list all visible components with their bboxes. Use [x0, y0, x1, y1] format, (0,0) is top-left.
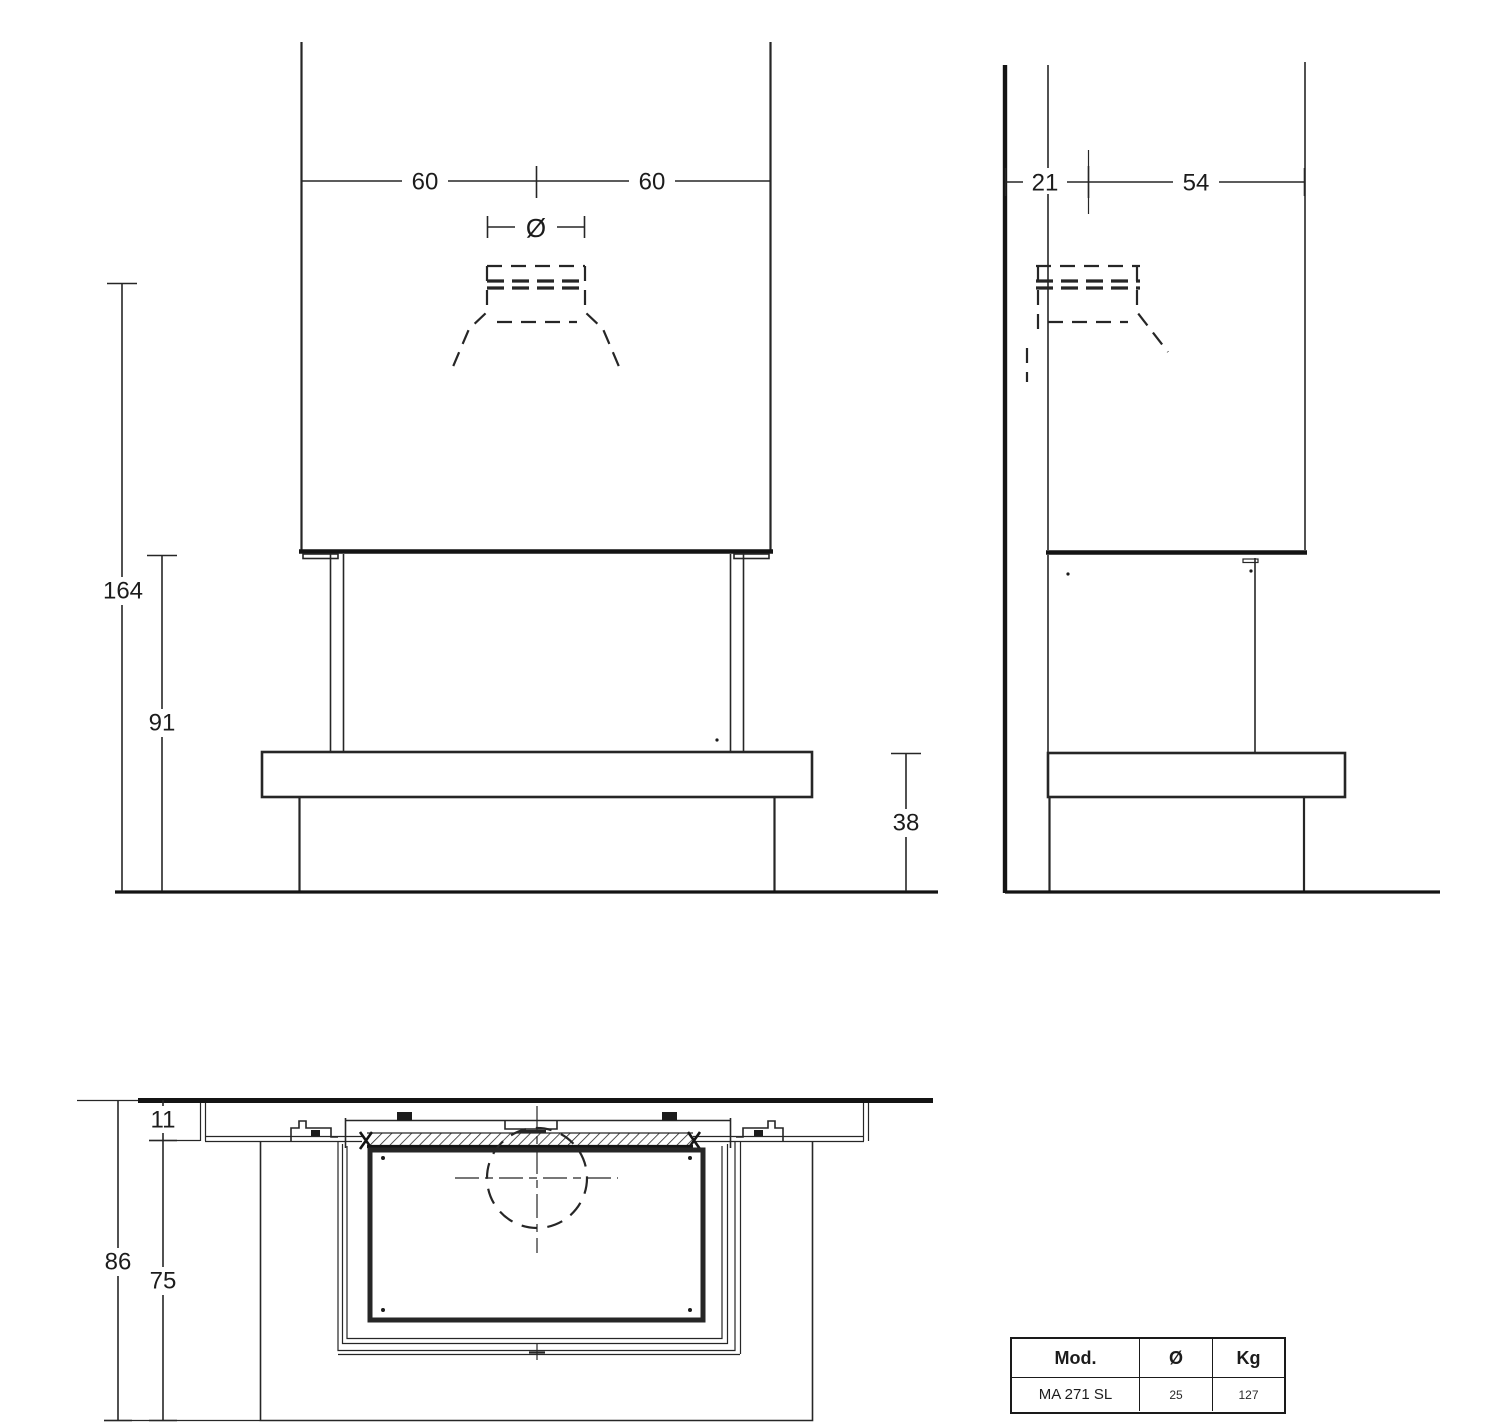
dim-label-flue-diameter: Ø: [526, 213, 546, 243]
plan-surround-outlines: [338, 1141, 741, 1360]
front-dim-total-height: 164: [96, 283, 150, 891]
front-dim-width: 60 60: [301, 166, 771, 198]
spec-value-weight: 127: [1213, 1378, 1284, 1411]
spec-header-weight: Kg: [1213, 1339, 1284, 1377]
dim-label-bench-depth: 75: [150, 1268, 177, 1295]
front-dim-opening-height: 91: [139, 555, 185, 891]
side-view: 21 54: [1005, 62, 1440, 893]
spec-value-diameter: 25: [1140, 1378, 1213, 1411]
plan-hatch-band: [360, 1132, 700, 1149]
technical-drawing: 60 60 Ø 164 91: [0, 0, 1500, 1427]
plan-dim-total-depth: 86: [92, 1100, 144, 1421]
side-base: [1050, 797, 1305, 891]
dim-label-total-depth: 86: [105, 1249, 132, 1276]
dim-label-front-width-left: 60: [412, 169, 439, 196]
plan-view: 86 11 75: [77, 1100, 933, 1421]
front-dim-diameter: Ø: [487, 213, 585, 243]
plan-clip-right: [736, 1121, 783, 1141]
plan-flue-circle: [455, 1106, 618, 1253]
front-bench: [262, 752, 812, 797]
dim-label-wall-clearance: 11: [151, 1107, 176, 1134]
dim-label-bench-height: 38: [893, 810, 920, 837]
plan-clip-left: [291, 1121, 338, 1141]
front-view: 60 60 Ø 164 91: [96, 42, 938, 892]
drawing-canvas: 60 60 Ø 164 91: [0, 0, 1500, 1427]
plan-dim-bench-depth: 75: [140, 1267, 186, 1295]
spec-table: Mod. Ø Kg MA 271 SL 25 127: [1010, 1337, 1286, 1414]
side-firebox: [1048, 555, 1258, 753]
front-base: [300, 797, 775, 891]
dim-label-total-height: 164: [103, 578, 143, 605]
front-hood: [299, 42, 773, 559]
spec-table-header-row: Mod. Ø Kg: [1012, 1339, 1284, 1378]
front-flue-dashed-outline: [452, 266, 620, 369]
plan-firebox: [370, 1150, 703, 1320]
side-bench: [1048, 753, 1345, 797]
dim-label-front-width-right: 60: [639, 169, 666, 196]
front-dim-bench-height: 38: [883, 753, 929, 891]
side-dim-depth: 21 54: [1005, 150, 1305, 214]
side-hood: [1046, 62, 1307, 553]
front-posts: [331, 554, 744, 752]
dim-label-hood-depth: 54: [1183, 170, 1210, 197]
spec-table-data-row: MA 271 SL 25 127: [1012, 1378, 1284, 1411]
dim-label-flue-offset: 21: [1032, 170, 1059, 197]
spec-value-model: MA 271 SL: [1012, 1378, 1140, 1411]
spec-header-mod: Mod.: [1012, 1339, 1140, 1377]
spec-header-diameter: Ø: [1140, 1339, 1213, 1377]
dim-label-opening-height: 91: [149, 710, 176, 737]
